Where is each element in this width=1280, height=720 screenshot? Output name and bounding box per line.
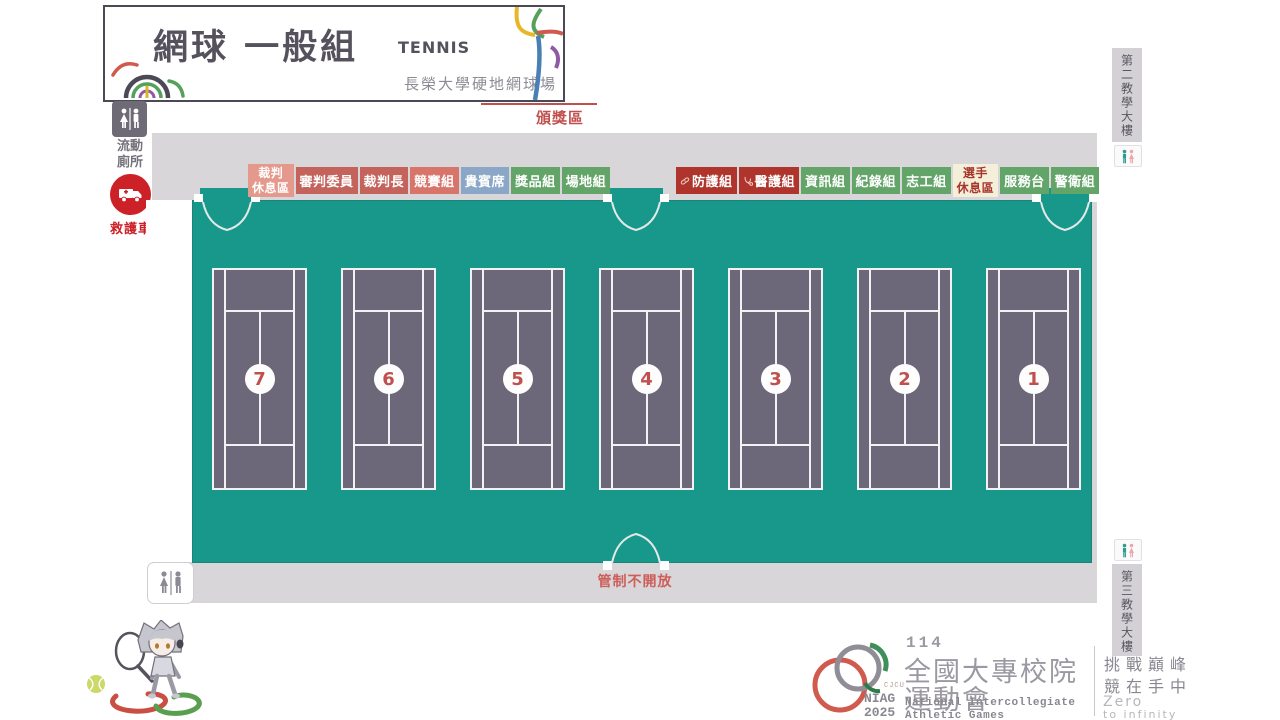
portable-toilet-icon [112, 101, 147, 137]
zone-chief-referee: 裁判長 [360, 167, 409, 194]
gate-closed-label: 管制不開放 [593, 571, 677, 591]
building-3-toilet-icon [1114, 539, 1142, 561]
zone-player-rest-area: 選手休息區 [953, 164, 999, 197]
ribbon-icon [501, 7, 563, 100]
zone-protection-group: 防護組 [676, 167, 737, 194]
court-number-badge: 1 [1019, 364, 1049, 394]
building-2-bar: 第二教學大樓 [1112, 48, 1142, 142]
door-top-center-icon [603, 186, 669, 234]
bandage-icon [680, 176, 690, 186]
stethoscope-icon [743, 176, 753, 186]
slogan-line1: 挑戰巔峰 [1104, 651, 1192, 675]
zone-security-group: 警衛組 [1051, 167, 1100, 194]
tennis-court-5: 5 [470, 268, 565, 490]
zone-competition-group: 競賽組 [410, 167, 459, 194]
court-number-badge: 4 [632, 364, 662, 394]
ambulance-icon [110, 174, 151, 215]
zone-row-left: 裁判休息區 審判委員 裁判長 競賽組 貴賓席 獎品組 場地組 [248, 164, 610, 197]
court-number-badge: 7 [245, 364, 275, 394]
court-number-badge: 2 [890, 364, 920, 394]
zone-volunteer-group: 志工組 [902, 167, 951, 194]
walkway-cut [146, 200, 192, 562]
zone-row-right: 防護組 醫護組 資訊組 紀錄組 志工組 選手休息區 服務台 警衛組 [676, 164, 1099, 197]
cjcu-label: CJCU [884, 682, 905, 690]
niag-year-label: NIAG 2025 [864, 692, 895, 719]
floor-toilet-icon [147, 562, 194, 604]
header-box: 網球 一般組 TENNIS 長榮大學硬地網球場 [103, 5, 565, 102]
building-2-toilet-icon [1114, 145, 1142, 167]
zone-records-group: 紀錄組 [852, 167, 901, 194]
event-title: 網球 一般組 [153, 19, 358, 70]
tennis-court-6: 6 [341, 268, 436, 490]
door-bottom-icon [603, 529, 669, 577]
tennis-court-4: 4 [599, 268, 694, 490]
mascot-illustration [78, 620, 218, 720]
building-3-label: 第三教學大樓 [1119, 570, 1136, 656]
event-title-en: TENNIS [398, 38, 470, 57]
zone-service-desk: 服務台 [1000, 167, 1049, 194]
venue-map: 網球 一般組 TENNIS 長榮大學硬地網球場 頒獎區 流動 廁所 [0, 0, 1280, 720]
slogan-en-line2: to infinity [1103, 708, 1177, 720]
zone-vip-seats: 貴賓席 [461, 167, 510, 194]
court-number-badge: 6 [374, 364, 404, 394]
building-3-bar: 第三教學大樓 [1112, 564, 1142, 656]
tennis-court-7: 7 [212, 268, 307, 490]
tennis-court-2: 2 [857, 268, 952, 490]
footer-divider [1094, 646, 1095, 716]
court-number-badge: 3 [761, 364, 791, 394]
zone-information-group: 資訊組 [801, 167, 850, 194]
award-area-label: 頒獎區 [520, 107, 600, 128]
games-title-en: National Intercollegiate Athletic Games [905, 697, 1075, 720]
zone-venue-group: 場地組 [562, 167, 611, 194]
zone-referee-rest-area: 裁判休息區 [248, 164, 294, 197]
tennis-court-1: 1 [986, 268, 1081, 490]
zone-jury-committee: 審判委員 [296, 167, 358, 194]
court-number-badge: 5 [503, 364, 533, 394]
zone-medical-group: 醫護組 [739, 167, 800, 194]
building-2-label: 第二教學大樓 [1119, 54, 1136, 142]
tennis-court-3: 3 [728, 268, 823, 490]
award-area-line [481, 103, 597, 105]
zone-prize-group: 獎品組 [511, 167, 560, 194]
